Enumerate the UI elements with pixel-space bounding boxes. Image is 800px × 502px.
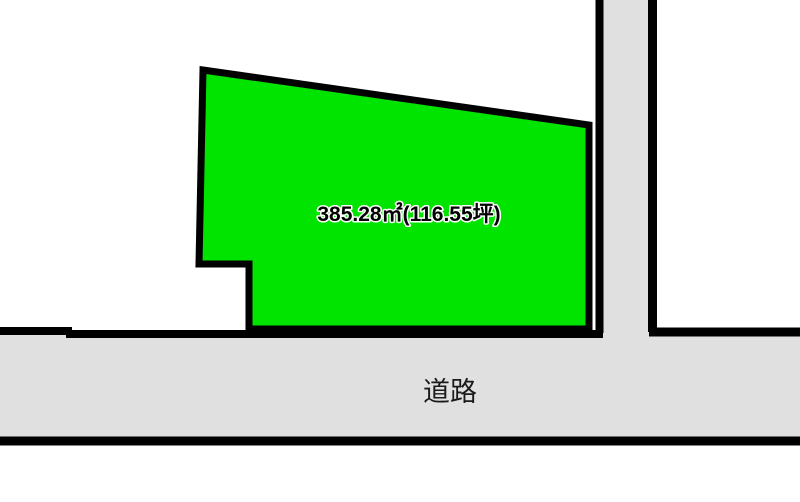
plot-drawing: 385.28㎡(116.55坪) 道路 [0,0,800,502]
parcel-area-label: 385.28㎡(116.55坪) [317,202,500,226]
parcel-shape [199,70,589,329]
horizontal-road-surface [0,334,800,437]
vertical-road-surface [601,0,650,340]
land-plot-diagram: 385.28㎡(116.55坪) 道路 [0,0,800,502]
road-label: 道路 [423,377,477,407]
